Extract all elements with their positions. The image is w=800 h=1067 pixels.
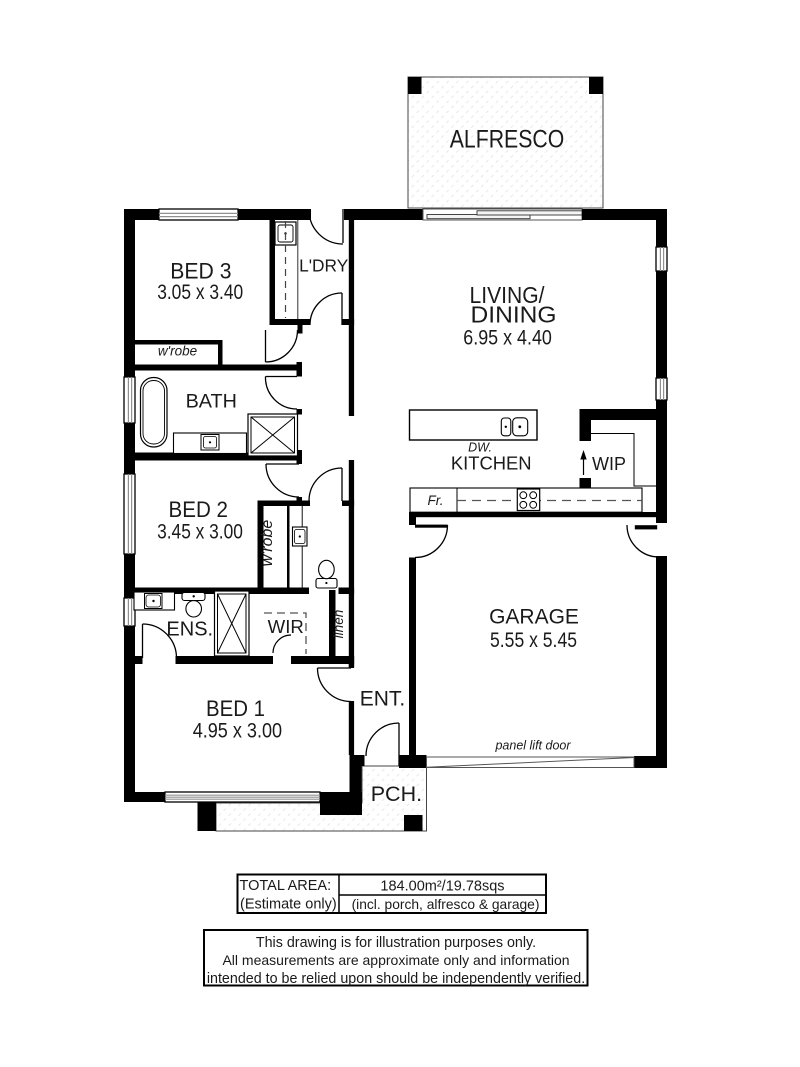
svg-text:Fr.: Fr. — [428, 493, 444, 508]
svg-text:panel lift door: panel lift door — [494, 739, 571, 753]
svg-text:BED 3: BED 3 — [170, 259, 231, 284]
svg-text:5.55 x 5.45: 5.55 x 5.45 — [490, 629, 577, 652]
svg-text:3.05 x 3.40: 3.05 x 3.40 — [157, 281, 243, 304]
svg-text:KITCHEN: KITCHEN — [451, 452, 532, 473]
svg-text:linen: linen — [331, 610, 346, 639]
svg-text:WIP: WIP — [592, 454, 626, 474]
svg-text:BED 2: BED 2 — [169, 497, 229, 522]
svg-text:4.95 x 3.00: 4.95 x 3.00 — [193, 720, 282, 743]
svg-text:6.95 x 4.40: 6.95 x 4.40 — [463, 326, 552, 349]
svg-text:DINING: DINING — [471, 302, 557, 328]
svg-text:ALFRESCO: ALFRESCO — [450, 126, 565, 154]
svg-text:GARAGE: GARAGE — [489, 605, 579, 628]
svg-text:w'robe: w'robe — [259, 520, 276, 567]
svg-text:L'DRY: L'DRY — [299, 255, 349, 275]
svg-text:(Estimate only): (Estimate only) — [240, 897, 337, 913]
svg-text:3.45 x 3.00: 3.45 x 3.00 — [157, 521, 243, 544]
svg-text:BED 1: BED 1 — [206, 696, 265, 721]
svg-text:ENT.: ENT. — [360, 688, 406, 711]
svg-text:WIR: WIR — [268, 616, 304, 637]
svg-text:ENS.: ENS. — [166, 619, 213, 641]
svg-text:This drawing is for illustrati: This drawing is for illustration purpose… — [256, 935, 536, 951]
svg-text:BATH: BATH — [186, 391, 237, 413]
svg-text:intended to be relied upon sho: intended to be relied upon should be ind… — [207, 971, 585, 987]
svg-text:184.00m²/19.78sqs: 184.00m²/19.78sqs — [380, 879, 504, 895]
svg-text:(incl. porch, alfresco & garag: (incl. porch, alfresco & garage) — [352, 897, 540, 912]
svg-text:All measurements are approxima: All measurements are approximate only an… — [222, 952, 569, 968]
svg-text:PCH.: PCH. — [371, 782, 422, 806]
svg-text:w'robe: w'robe — [158, 344, 197, 359]
svg-text:TOTAL AREA:: TOTAL AREA: — [240, 878, 332, 894]
